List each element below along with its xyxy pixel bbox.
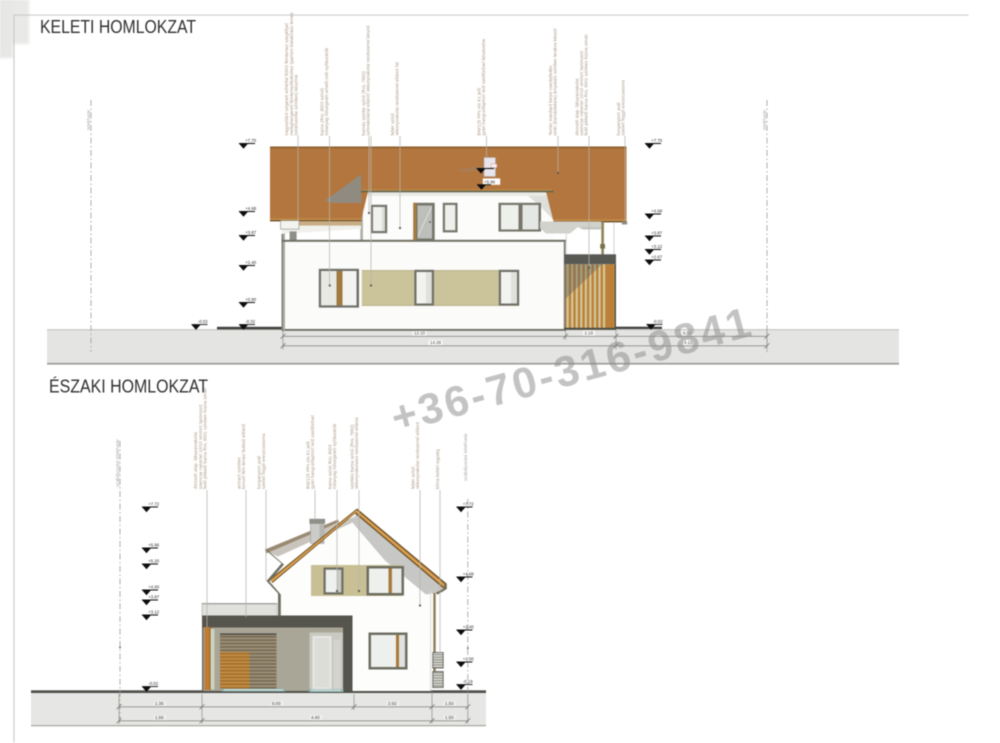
svg-text:+5.20: +5.20 [148, 559, 159, 564]
svg-text:-0.32: -0.32 [245, 319, 255, 324]
svg-text:+4.00: +4.00 [148, 585, 159, 590]
svg-text:szabályozási telekhatár: szabályozási telekhatár [463, 433, 468, 481]
svg-text:6.00: 6.00 [272, 701, 281, 706]
svg-text:-0.19: -0.19 [463, 679, 473, 684]
svg-text:klíma kültéri egység: klíma kültéri egység [435, 448, 440, 489]
svg-text:vékonyvakolat rendszerrel ellá: vékonyvakolat rendszerrel ellátott fal [395, 62, 400, 135]
svg-text:+2.40: +2.40 [245, 260, 256, 265]
svg-text:+3.87: +3.87 [651, 231, 662, 236]
svg-text:+4.68: +4.68 [651, 209, 662, 214]
svg-text:szerelt függő ereszcsatorna: szerelt függő ereszcsatorna [261, 433, 266, 489]
svg-text:+3.12: +3.12 [148, 610, 159, 615]
svg-text:+1.00: +1.00 [463, 657, 474, 662]
svg-text:műanyag hőszigetelt emelő-toló: műanyag hőszigetelt emelő-toló nyílászár… [324, 47, 329, 136]
svg-text:+7.70: +7.70 [245, 138, 256, 143]
svg-text:12.10: 12.10 [414, 331, 426, 336]
svg-text:+2.67: +2.67 [651, 255, 662, 260]
svg-text:+7.70: +7.70 [651, 138, 662, 143]
svg-text:1.36: 1.36 [155, 701, 164, 706]
svg-text:1.50: 1.50 [445, 715, 454, 720]
svg-text:+5.96: +5.96 [148, 543, 159, 548]
svg-text:1.50: 1.50 [445, 701, 454, 706]
svg-text:telekhatár: telekhatár [86, 109, 91, 130]
svg-text:-0.02: -0.02 [148, 681, 158, 686]
svg-text:KELETI HOMLOKZAT: KELETI HOMLOKZAT [40, 17, 196, 37]
svg-text:4.40: 4.40 [311, 715, 320, 720]
svg-text:14.28: 14.28 [430, 340, 442, 345]
svg-text:+7.72: +7.72 [463, 502, 474, 507]
svg-text:szerelt függő ereszcsatorna: szerelt függő ereszcsatorna [621, 79, 626, 135]
svg-text:2.92: 2.92 [388, 701, 397, 706]
svg-text:+3.87: +3.87 [245, 230, 256, 235]
svg-text:(sötétszürke színben) készítve: (sötétszürke színben) készítve [293, 74, 298, 136]
svg-text:műanyag hőszigetelt nyílászáró: műanyag hőszigetelt nyílászárók [332, 423, 337, 489]
svg-text:+3.12: +3.12 [651, 244, 662, 249]
svg-text:telekhatár: telekhatár [762, 109, 767, 130]
svg-text:vékonyvakolatos rendszerrel el: vékonyvakolatos rendszerrel ellátva [354, 417, 359, 489]
svg-text:+2.40: +2.40 [463, 625, 474, 630]
svg-text:színvakolattal ellátott vékony: színvakolattal ellátott vékonyvakolat re… [366, 25, 371, 135]
svg-text:fedő pikkelő barna RAL 9001 sz: fedő pikkelő barna RAL 9001 színben húzv… [202, 387, 207, 489]
svg-text:1.56: 1.56 [155, 715, 164, 720]
svg-text:2.18: 2.18 [585, 331, 594, 336]
svg-text:korcolt fém lemez fedésű előte: korcolt fém lemez fedésű előtető [241, 423, 246, 489]
svg-text:gyári hangcsillapított tető sz: gyári hangcsillapított tető szellőzővel [310, 415, 315, 489]
svg-text:+7.72: +7.72 [148, 502, 159, 507]
svg-text:+0.90: +0.90 [245, 297, 256, 302]
svg-text:gyári hangcsillapított tető sz: gyári hangcsillapított tető szellőzővel … [481, 38, 486, 135]
svg-text:+3.87: +3.87 [148, 595, 159, 600]
svg-text:szabályozási telekhatár: szabályozási telekhatár [115, 439, 120, 487]
svg-text:+5.96: +5.96 [484, 180, 496, 185]
svg-text:fedő pikkelő barna RAL 9001 sz: fedő pikkelő barna RAL 9001 színben húzv… [584, 34, 589, 136]
svg-text:+4.68: +4.68 [463, 572, 474, 577]
svg-text:+4.68: +4.68 [245, 206, 256, 211]
svg-text:ÉSZAKI HOMLOKZAT: ÉSZAKI HOMLOKZAT [49, 377, 208, 397]
svg-text:-0.02: -0.02 [198, 319, 208, 324]
svg-text:sötét (barnásfekete) árnyalatú: sötét (barnásfekete) árnyalatú színben l… [553, 28, 558, 135]
